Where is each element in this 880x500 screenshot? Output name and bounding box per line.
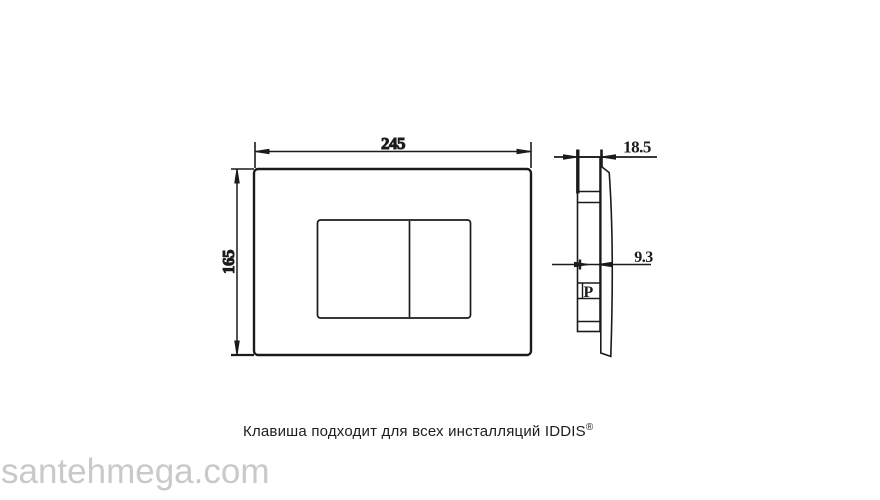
height-dimension-label: 165 (219, 250, 238, 274)
product-drawing-image: 245 165 P (0, 0, 880, 500)
dimension-arrow (517, 149, 531, 153)
dimension-arrow (564, 155, 578, 159)
site-watermark: santehmega.com (1, 454, 269, 489)
depth-dimension-label: 18.5 (623, 138, 651, 157)
dimension-arrow (602, 155, 616, 159)
side-view-depth-dimension: 18.5 (554, 138, 657, 167)
mounting-frame-outline (578, 157, 601, 332)
front-view-width-dimension: 245 (255, 134, 531, 168)
caption-text: Клавиша подходит для всех инсталляций ID… (243, 423, 586, 440)
registered-trademark-mark: ® (586, 422, 594, 433)
dimension-arrow (235, 341, 239, 355)
width-dimension-label: 245 (381, 134, 405, 153)
plate-outline (254, 169, 531, 355)
front-view-height-dimension: 165 (219, 169, 254, 355)
plate-side-profile (601, 166, 612, 356)
button-depth-dimension-label: 9.3 (634, 249, 653, 266)
dimension-arrow (575, 262, 589, 266)
buttons-outline (318, 220, 471, 318)
dimension-arrow (255, 149, 269, 153)
side-view: P (578, 150, 613, 357)
product-caption: Клавиша подходит для всех инсталляций ID… (243, 423, 593, 440)
dimension-arrow (235, 169, 239, 183)
port-label: P (584, 284, 594, 301)
front-view (254, 169, 531, 355)
